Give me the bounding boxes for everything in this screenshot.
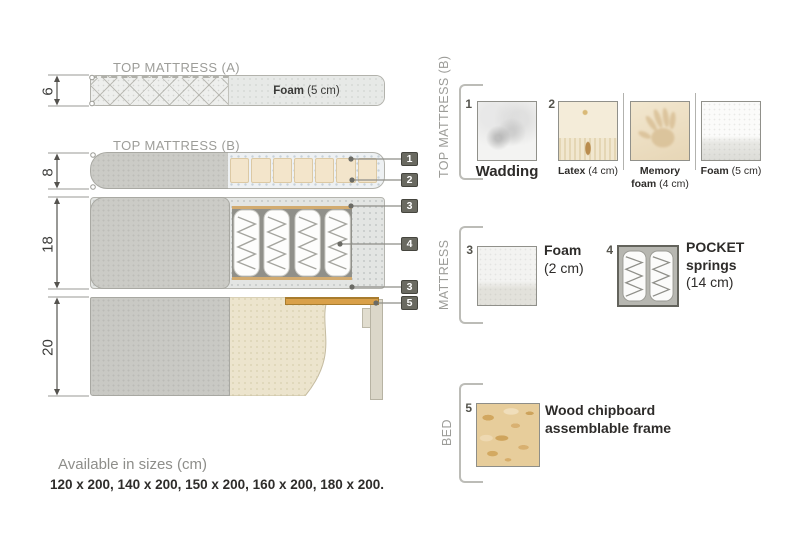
fabric-cover — [90, 152, 228, 189]
memory-foam-label: Memory foam (4 cm) — [628, 165, 692, 190]
mattress-construction-infographic: TOP MATTRESS (A) Foam (5 cm) TOP MATTRES… — [0, 0, 800, 533]
legend-divider — [623, 93, 624, 170]
fabric-cover — [90, 197, 230, 289]
mattress-diagram — [90, 197, 385, 289]
latex-cell — [358, 158, 377, 183]
callout-4: 4 — [401, 237, 418, 251]
legend-item-number: 5 — [460, 401, 472, 415]
hand-imprint-icon — [631, 102, 689, 160]
bed-diagram — [90, 297, 385, 396]
pocket-spring — [294, 209, 321, 277]
latex-cell — [251, 158, 270, 183]
legend-item-number: 2 — [543, 97, 555, 111]
legend-divider — [695, 93, 696, 170]
pocket-spring — [263, 209, 290, 277]
foam-2cm-swatch — [477, 246, 537, 306]
pocket-springs-swatch — [617, 245, 679, 307]
quilted-wadding-section — [91, 76, 229, 105]
legend-item-number: 4 — [601, 243, 613, 257]
top-mattress-b-diagram — [90, 152, 385, 189]
legend-item-number: 3 — [461, 243, 473, 257]
memory-foam-swatch — [630, 101, 690, 161]
pocket-springs-layer — [232, 206, 352, 280]
top-mattress-a-title: TOP MATTRESS (A) — [113, 60, 240, 75]
callout-3-bottom: 3 — [401, 280, 418, 294]
foam-5cm-label: Foam (5 cm) — [691, 165, 771, 178]
dimension-20cm: 20 — [40, 336, 57, 360]
wood-slat — [285, 297, 379, 305]
pocket-springs-label: POCKET springs (14 cm) — [686, 239, 760, 292]
wadding-swatch — [477, 101, 537, 161]
foam-section: Foam (5 cm) — [229, 76, 384, 105]
legend-section-title-top-mattress-b: TOP MATTRESS (B) — [437, 78, 453, 178]
wood-chipboard-label: Wood chipboard assemblable frame — [545, 402, 690, 437]
latex-label: Latex (4 cm) — [548, 165, 628, 178]
top-mattress-a-diagram: Foam (5 cm) — [90, 75, 385, 106]
legend-section-title-mattress: MATTRESS — [437, 225, 453, 325]
foam-a-label: Foam (5 cm) — [273, 85, 339, 97]
latex-swatch — [558, 101, 618, 161]
foam-5cm-swatch — [701, 101, 761, 161]
top-mattress-b-title: TOP MATTRESS (B) — [113, 138, 240, 153]
latex-cell — [294, 158, 313, 183]
callout-5: 5 — [401, 296, 418, 310]
sizes-list: 120 x 200, 140 x 200, 150 x 200, 160 x 2… — [50, 477, 384, 492]
latex-cell — [336, 158, 355, 183]
pocket-spring — [233, 209, 260, 277]
wood-chipboard-swatch — [476, 403, 540, 467]
bed-fabric-gray — [90, 297, 230, 396]
bed-frame-side — [370, 299, 383, 400]
latex-layer — [230, 158, 377, 183]
foam-2cm-label: Foam (2 cm) — [544, 242, 604, 277]
latex-cell — [273, 158, 292, 183]
bed-fabric-drape — [225, 297, 355, 396]
dimension-18cm: 18 — [40, 233, 57, 257]
legend-section-title-bed: BED — [440, 383, 456, 483]
dimension-6cm: 6 — [40, 80, 57, 104]
legend-item-number: 1 — [460, 97, 472, 111]
pocket-spring — [324, 209, 351, 277]
latex-cell — [230, 158, 249, 183]
sizes-title: Available in sizes (cm) — [58, 456, 207, 473]
wadding-layer — [228, 152, 385, 189]
latex-cell — [315, 158, 334, 183]
dimension-8cm: 8 — [40, 161, 57, 185]
wadding-label: Wadding — [467, 163, 547, 181]
callout-1: 1 — [401, 152, 418, 166]
callout-3-top: 3 — [401, 199, 418, 213]
callout-2: 2 — [401, 173, 418, 187]
